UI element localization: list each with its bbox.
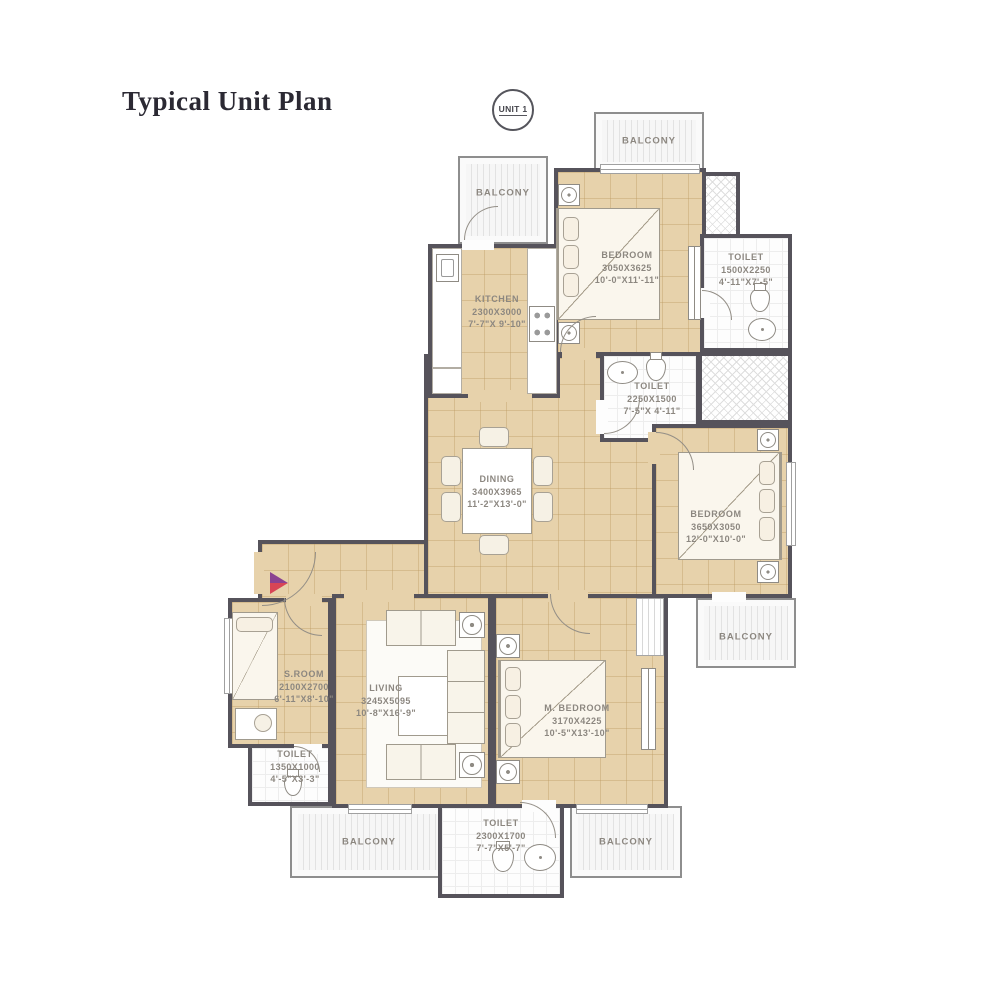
pillow-icon [236,617,273,632]
pillow-icon [563,245,579,269]
pillow-icon [759,517,775,541]
pillow-icon [759,489,775,513]
balcony-label-right: BALCONY [719,630,773,643]
window-m-bedroom [576,804,648,814]
page-title: Typical Unit Plan [122,86,333,117]
wardrobe-icon [641,668,656,750]
balcony-label-kitchen: BALCONY [476,186,530,199]
nightstand-lamp-icon [757,561,779,583]
opening-kitchen-balcony-door [462,240,494,250]
room-label-bedroom-right: BEDROOM 3650X3050 12'-0"X10'-0" [686,508,746,546]
stove-icon [529,306,555,342]
floor-plan-canvas: Typical Unit Plan UNIT 1 [0,0,1000,1000]
dining-chair-icon [441,492,461,522]
opening-living-hall [344,590,414,602]
room-label-dining: DINING 3400X3965 11'-2"X13'-0" [467,473,527,511]
nightstand-lamp-icon [757,429,779,451]
unit-badge-label: UNIT 1 [499,104,528,116]
pillow-icon [563,217,579,241]
opening-kitchen-hall [468,390,532,402]
kitchen-cabinet [432,368,462,394]
pillow-icon [505,723,521,747]
window-bedroom-top [600,164,700,174]
room-label-bedroom-top: BEDROOM 3050X3625 10'-0"X11'-11" [595,249,659,287]
nightstand-lamp-icon [496,634,520,658]
window-living [348,804,412,814]
washbasin-icon [748,318,776,341]
dining-chair-icon [533,492,553,522]
sofa-icon [447,650,485,744]
sofa-icon [386,610,456,646]
dining-chair-icon [533,456,553,486]
kitchen-sink-icon [436,254,459,282]
shaft-right [698,352,792,424]
dining-chair-icon [479,535,509,555]
opening-balcony-right-door [712,592,746,602]
balcony-label-top: BALCONY [622,134,676,147]
shaft-top [702,172,740,238]
nightstand-lamp-icon [558,184,580,206]
wardrobe-icon [688,246,701,320]
washbasin-icon [524,844,556,871]
pillow-icon [505,695,521,719]
single-bed-icon [232,612,278,700]
balcony-label-bottom-right: BALCONY [599,835,653,848]
window-bedroom-right [786,462,796,546]
desk-chair-icon [254,714,272,732]
pillow-icon [563,273,579,297]
unit-badge: UNIT 1 [492,89,534,131]
side-table-lamp-icon [459,752,485,778]
sofa-icon [386,744,456,780]
pillow-icon [505,667,521,691]
room-label-kitchen: KITCHEN 2300X3000 7'-7"X 9'-10" [468,293,526,331]
room-label-toilet-mid: TOILET 2250X1500 7'-5"X 4'-11" [623,380,680,418]
room-label-s-room: S.ROOM 2100X2700 6'-11"X8'-10" [274,668,334,706]
room-label-living: LIVING 3245X5095 10'-8"X16'-9" [356,682,416,720]
room-label-toilet-tr: TOILET 1500X2250 4'-11"X7'-5" [719,251,773,289]
nightstand-lamp-icon [496,760,520,784]
dining-chair-icon [441,456,461,486]
side-table-lamp-icon [459,612,485,638]
room-label-toilet-bc: TOILET 2300X1700 7'-7"X5'-7" [476,817,526,855]
balcony-label-bottom-left: BALCONY [342,835,396,848]
dining-chair-icon [479,427,509,447]
room-label-m-bedroom: M. BEDROOM 3170X4225 10'-5"X13'-10" [544,702,610,740]
closet-icon [636,598,664,656]
pillow-icon [759,461,775,485]
room-label-toilet-bl: TOILET 1350X1000 4'-5"X3'-3" [270,748,320,786]
